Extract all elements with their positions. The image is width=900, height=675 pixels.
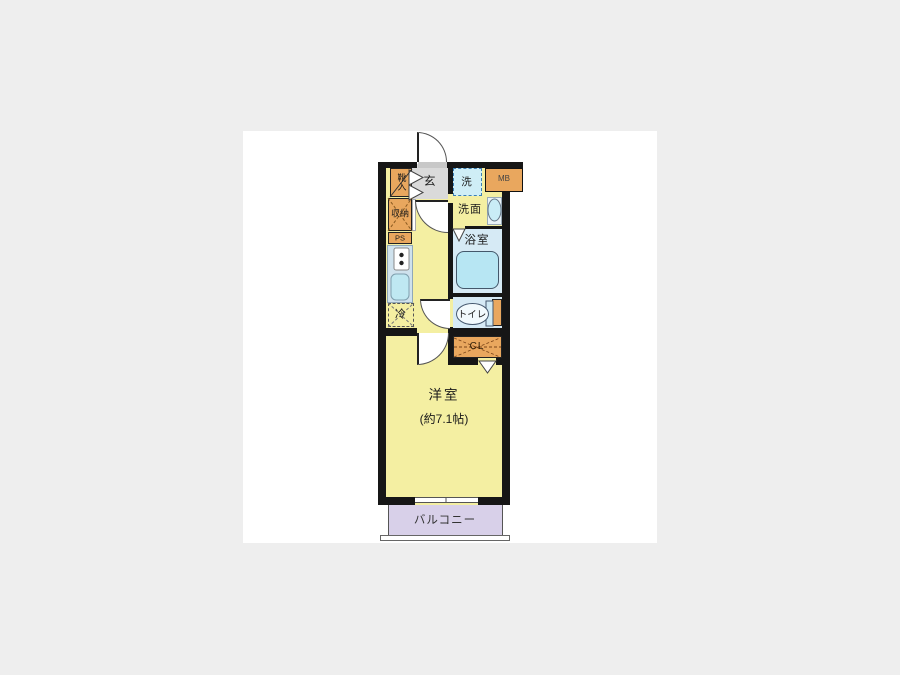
meter-box-label: MB: [498, 175, 510, 183]
toilet-cabinet: [492, 299, 502, 326]
wall-bottom-left: [378, 497, 415, 505]
toilet-label: トイレ: [458, 310, 487, 320]
closet-label: CL: [470, 342, 485, 352]
wall-right: [502, 190, 510, 505]
wall-genkan-washroom: [448, 164, 453, 194]
storage-label: 収納: [391, 210, 409, 219]
entrance-door-swing: [417, 132, 447, 162]
bathtub: [456, 251, 499, 289]
wall-mid-right: [448, 328, 510, 336]
kitchen-counter: [387, 245, 413, 303]
floorplan-panel: 玄 洗 MB 靴入 収納 PS 洗面 浴室 冷 トイレ CL 洋室 (約7.1帖…: [243, 131, 657, 543]
genkan-label: 玄: [423, 175, 436, 187]
wall-closet-bottom-left: [448, 358, 478, 365]
entrance-threshold: [418, 162, 447, 168]
wall-bath-toilet: [448, 293, 510, 297]
wall-washroom-bath: [465, 226, 502, 229]
page: { "plan": { "rooms": { "genkan": { "labe…: [0, 0, 900, 675]
wall-corridor-wet-1: [448, 203, 453, 299]
shoe-box-label: 靴入: [397, 173, 406, 191]
balcony-label: バルコニー: [414, 515, 476, 527]
wall-closet-bottom-right: [496, 358, 510, 365]
western-room-size: (約7.1帖): [420, 413, 469, 425]
balcony-window: [415, 497, 478, 503]
washer-label: 洗: [461, 177, 473, 188]
balcony-ledge: [380, 535, 510, 541]
washroom-label: 洗面: [458, 205, 482, 216]
bathroom-label: 浴室: [465, 235, 490, 247]
fridge-label: 冷: [395, 310, 407, 321]
pipe-space-label: PS: [395, 234, 405, 242]
western-room-label: 洋室: [429, 388, 460, 402]
wall-mid-left: [378, 328, 417, 336]
wall-bottom-right: [478, 497, 510, 505]
washstand-counter: [487, 197, 502, 225]
